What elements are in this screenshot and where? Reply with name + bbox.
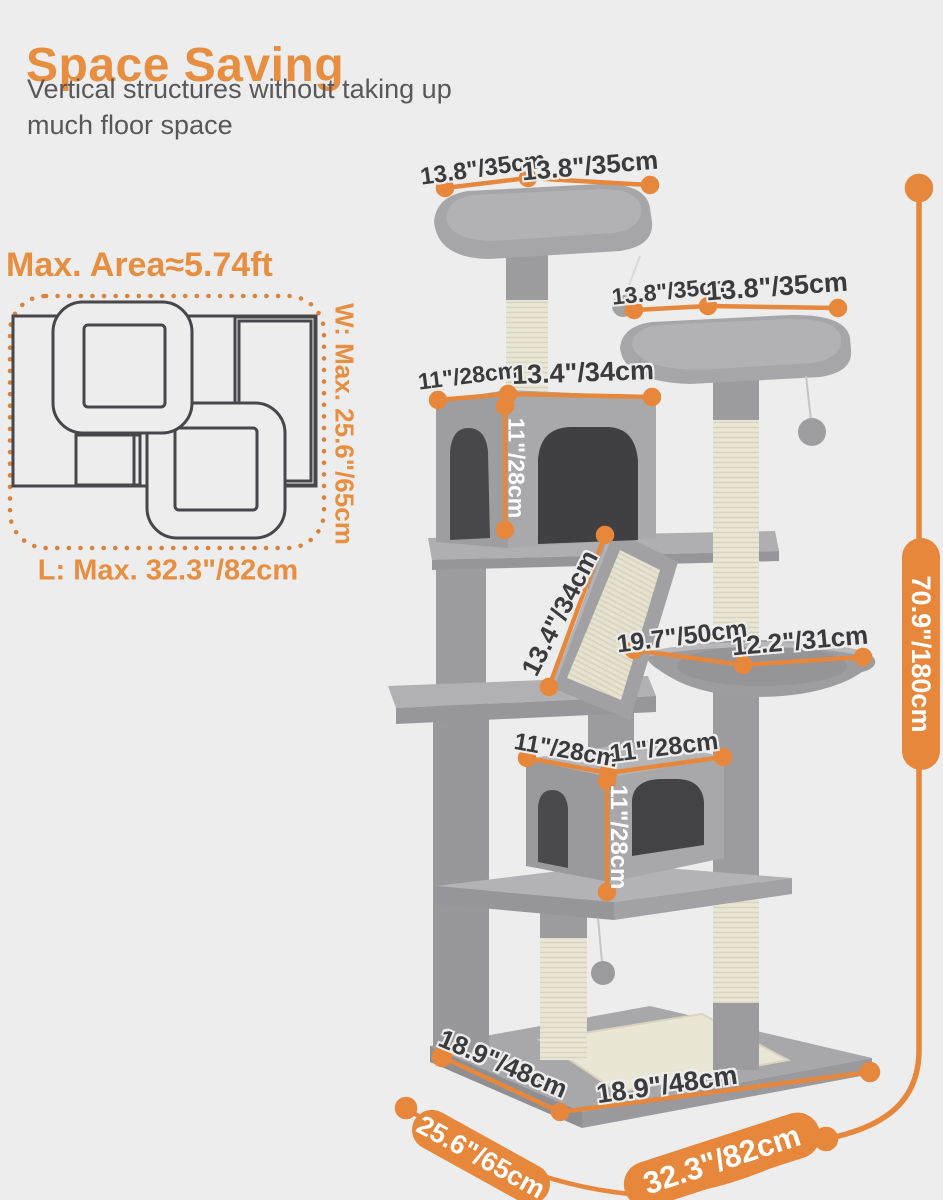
subtitle-line-2: much floor space <box>27 110 233 140</box>
floor-plan-diagram <box>10 296 324 548</box>
dim-upper-condo-height: 11"/28cm <box>503 418 530 518</box>
floor-plan-small-box <box>76 435 140 485</box>
left-post <box>433 700 489 1052</box>
floorplan-width-label: W: Max. 25.6"/65cm <box>329 303 360 545</box>
pom-pom-ball <box>798 418 826 446</box>
max-area-title: Max. Area≈5.74ft <box>6 246 273 285</box>
right-sisal-post <box>713 362 759 1070</box>
lower-condo-entrance <box>632 779 704 856</box>
total-height-value: 70.9"/180cm <box>906 576 937 733</box>
dim-lower-condo-height: 11"/28cm <box>604 785 632 890</box>
subtitle-line-1: Vertical structures without taking up <box>27 74 452 104</box>
page-subtitle: Vertical structures without taking up mu… <box>27 72 452 143</box>
dim-upper-condo-depth: 13.4"/34cm <box>512 355 655 391</box>
total-height-badge: 70.9"/180cm <box>902 538 940 770</box>
floorplan-length-label: L: Max. 32.3"/82cm <box>38 555 298 588</box>
second-perch <box>620 315 851 384</box>
upper-condo <box>436 390 656 548</box>
center-sisal-post <box>540 902 587 1060</box>
lower-condo-window <box>538 790 568 868</box>
upper-condo-entrance <box>538 427 638 544</box>
top-perch <box>434 184 652 259</box>
product-dimension-infographic: Space Saving Vertical structures without… <box>0 0 943 1200</box>
upper-condo-window <box>450 428 490 540</box>
pom-pom-ball <box>591 961 615 985</box>
